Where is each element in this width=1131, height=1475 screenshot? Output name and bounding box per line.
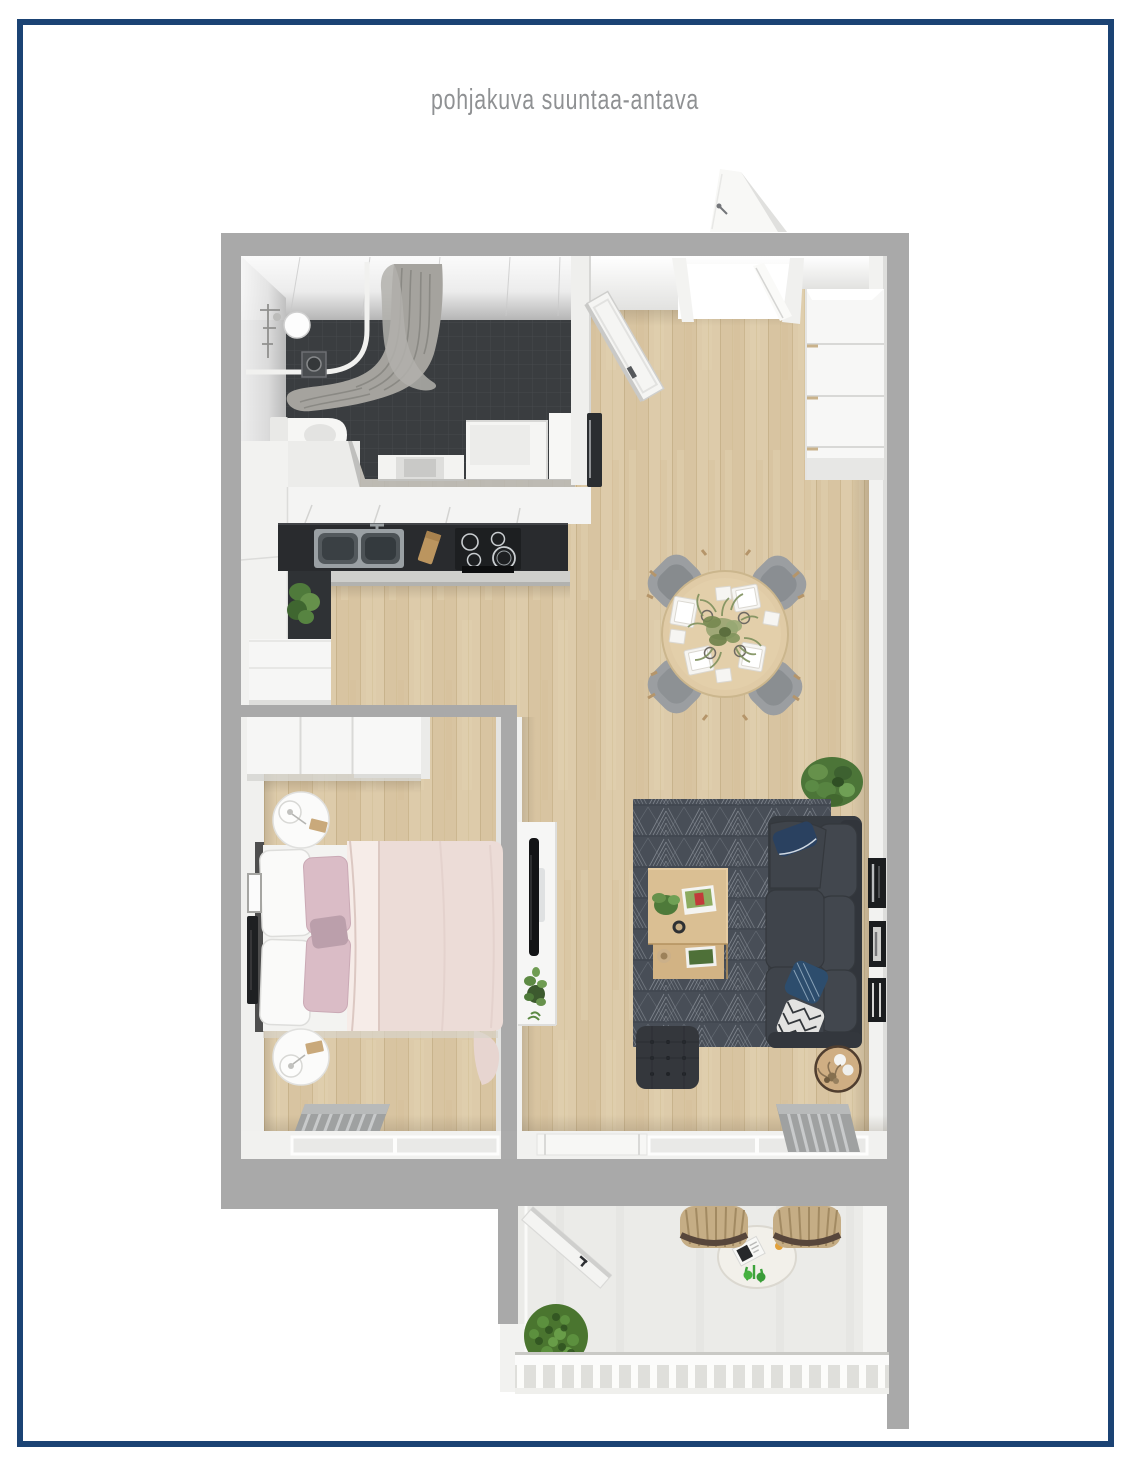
svg-text:pohjakuva suuntaa-antava: pohjakuva suuntaa-antava: [431, 84, 699, 116]
